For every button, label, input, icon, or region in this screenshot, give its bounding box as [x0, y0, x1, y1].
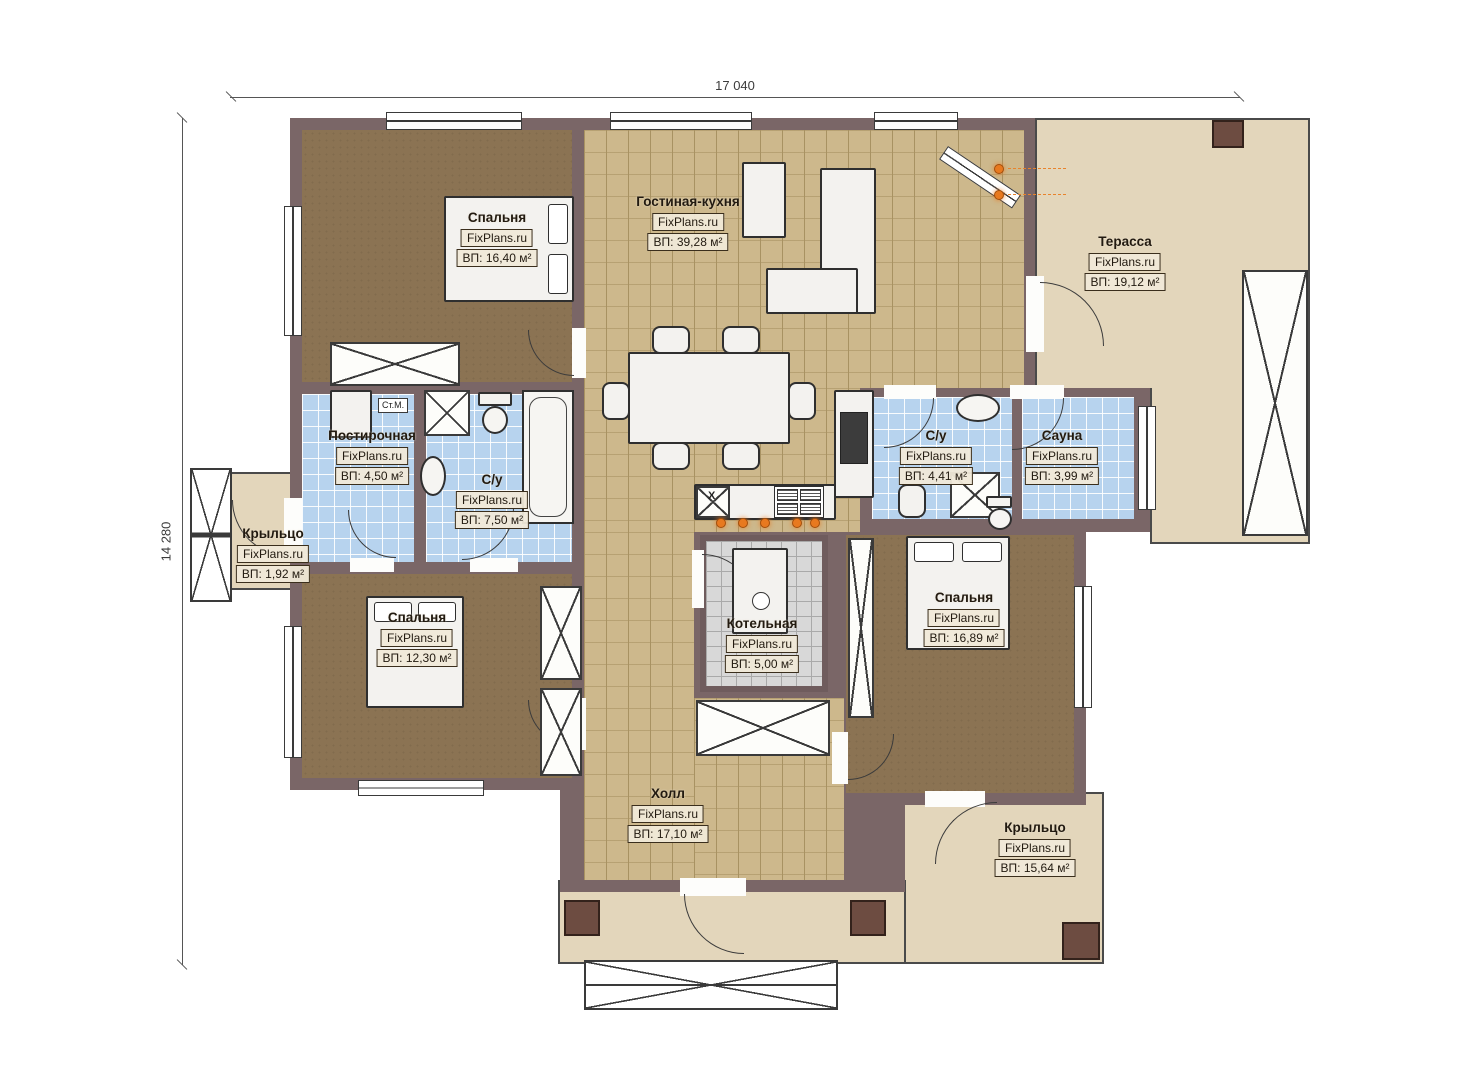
column: [564, 900, 600, 936]
toilet-icon: [988, 508, 1012, 530]
brand-box: FixPlans.ru: [336, 447, 408, 465]
brand-box: FixPlans.ru: [1026, 447, 1098, 465]
window: [874, 112, 958, 130]
sofa-chaise-icon: [766, 268, 858, 314]
steps-bottom: [584, 960, 838, 1010]
chair-icon: [602, 382, 630, 420]
socket-icon: [716, 518, 726, 528]
label-living-kitchen: Гостиная-кухня FixPlans.ru ВП: 39,28 м²: [636, 194, 739, 251]
area-box: ВП: 4,41 м²: [899, 467, 973, 485]
room-name: С/у: [925, 428, 946, 443]
label-boiler-room: Котельная FixPlans.ru ВП: 5,00 м²: [725, 616, 799, 673]
label-bedroom-1: Спальня FixPlans.ru ВП: 16,40 м²: [457, 210, 538, 267]
brand-box: FixPlans.ru: [237, 545, 309, 563]
socket-icon: [994, 190, 1004, 200]
label-bathroom-2: С/у FixPlans.ru ВП: 4,41 м²: [899, 428, 973, 485]
socket-icon: [760, 518, 770, 528]
chair-icon: [652, 326, 690, 354]
brand-box: FixPlans.ru: [456, 491, 528, 509]
label-porch-left: Крыльцо FixPlans.ru ВП: 1,92 м²: [236, 526, 310, 583]
room-name: Крыльцо: [242, 526, 303, 541]
toilet-tank-icon: [478, 392, 512, 406]
tv-stand-icon: [742, 162, 786, 238]
wardrobe-icon: [540, 688, 582, 776]
brand-box: FixPlans.ru: [461, 229, 533, 247]
dimension-width-label: 17 040: [715, 78, 755, 93]
brand-box: FixPlans.ru: [632, 805, 704, 823]
brand-box: FixPlans.ru: [652, 213, 724, 231]
brand-box: FixPlans.ru: [1089, 253, 1161, 271]
socket-lead-line: [1008, 168, 1066, 169]
chair-icon: [722, 326, 760, 354]
brand-box: FixPlans.ru: [999, 839, 1071, 857]
window: [1074, 586, 1092, 708]
area-box: ВП: 4,50 м²: [335, 467, 409, 485]
window: [284, 206, 302, 336]
room-name: Постирочная: [328, 428, 416, 443]
wardrobe-icon: [330, 342, 460, 386]
brand-box: FixPlans.ru: [900, 447, 972, 465]
area-box: ВП: 12,30 м²: [377, 649, 458, 667]
column: [850, 900, 886, 936]
washing-machine-label: Ст.М.: [378, 398, 408, 413]
toilet-icon: [482, 406, 508, 434]
floor-plan-canvas: 17 040 14 280: [0, 0, 1473, 1080]
chair-icon: [788, 382, 816, 420]
water-heater-icon: [898, 484, 926, 518]
window: [386, 112, 522, 130]
label-terrace: Терасса FixPlans.ru ВП: 19,12 м²: [1085, 234, 1166, 291]
boiler-dial-icon: [752, 592, 770, 610]
label-bedroom-3: Спальня FixPlans.ru ВП: 16,89 м²: [924, 590, 1005, 647]
terrace-window: [1242, 270, 1308, 536]
area-box: ВП: 3,99 м²: [1025, 467, 1099, 485]
column: [1212, 120, 1244, 148]
label-hall: Холл FixPlans.ru ВП: 17,10 м²: [628, 786, 709, 843]
door-opening: [832, 732, 848, 784]
room-name: Терасса: [1098, 234, 1152, 249]
room-name: Спальня: [388, 610, 446, 625]
chair-icon: [652, 442, 690, 470]
wardrobe-icon: [696, 700, 830, 756]
area-box: ВП: 16,89 м²: [924, 629, 1005, 647]
label-sauna: Сауна FixPlans.ru ВП: 3,99 м²: [1025, 428, 1099, 485]
room-name: Крыльцо: [1004, 820, 1065, 835]
room-name: Сауна: [1042, 428, 1083, 443]
dining-table-icon: [628, 352, 790, 444]
socket-icon: [994, 164, 1004, 174]
area-box: ВП: 7,50 м²: [455, 511, 529, 529]
area-box: ВП: 17,10 м²: [628, 825, 709, 843]
door-opening: [350, 558, 394, 572]
door-opening: [572, 328, 586, 378]
dimension-line-left: [182, 118, 183, 965]
room-name: Котельная: [727, 616, 798, 631]
sink-icon: [956, 394, 1000, 422]
area-box: ВП: 5,00 м²: [725, 655, 799, 673]
room-name: Спальня: [935, 590, 993, 605]
stove-icon: [774, 486, 824, 518]
column: [1062, 922, 1100, 960]
shower-icon: [424, 390, 470, 436]
brand-box: FixPlans.ru: [928, 609, 1000, 627]
room-name: Холл: [651, 786, 685, 801]
window: [610, 112, 752, 130]
window: [1138, 406, 1156, 510]
toilet-tank-icon: [986, 496, 1012, 508]
dimension-line-top: [230, 97, 1240, 98]
door-opening: [884, 385, 936, 399]
label-bathroom-1: С/у FixPlans.ru ВП: 7,50 м²: [455, 472, 529, 529]
room-name: С/у: [481, 472, 502, 487]
window: [358, 780, 484, 796]
room-name: Гостиная-кухня: [636, 194, 739, 209]
socket-icon: [810, 518, 820, 528]
dimension-height-label: 14 280: [158, 522, 173, 562]
door-opening: [470, 558, 518, 572]
window: [284, 626, 302, 758]
wardrobe-icon: [848, 538, 874, 718]
brand-box: FixPlans.ru: [726, 635, 798, 653]
area-box: ВП: 39,28 м²: [648, 233, 729, 251]
wardrobe-icon: [540, 586, 582, 680]
kitchen-sink-icon: [840, 412, 868, 464]
socket-icon: [792, 518, 802, 528]
area-box: ВП: 1,92 м²: [236, 565, 310, 583]
area-box: ВП: 15,64 м²: [995, 859, 1076, 877]
sink-icon: [420, 456, 446, 496]
room-name: Спальня: [468, 210, 526, 225]
area-box: ВП: 16,40 м²: [457, 249, 538, 267]
label-bedroom-2: Спальня FixPlans.ru ВП: 12,30 м²: [377, 610, 458, 667]
steps-left: [190, 468, 232, 602]
label-porch-right: Крыльцо FixPlans.ru ВП: 15,64 м²: [995, 820, 1076, 877]
label-laundry: Постирочная FixPlans.ru ВП: 4,50 м²: [328, 428, 416, 485]
bathtub-icon: [522, 390, 574, 524]
brand-box: FixPlans.ru: [381, 629, 453, 647]
socket-lead-line: [1008, 194, 1066, 195]
socket-icon: [738, 518, 748, 528]
chair-icon: [722, 442, 760, 470]
area-box: ВП: 19,12 м²: [1085, 273, 1166, 291]
door-opening: [1010, 385, 1064, 399]
sink-x-mark: X: [708, 490, 715, 502]
